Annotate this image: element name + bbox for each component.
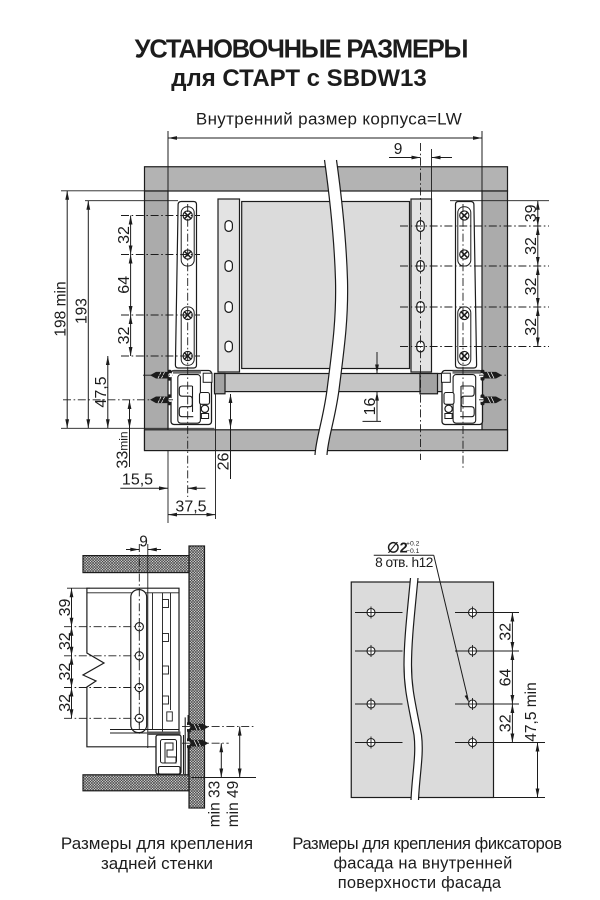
svg-text:32: 32 (57, 663, 74, 681)
svg-text:64: 64 (498, 669, 515, 687)
svg-text:39: 39 (523, 204, 540, 222)
svg-text:33min: 33min (115, 431, 132, 468)
svg-text:−0.1: −0.1 (406, 548, 420, 555)
svg-text:32: 32 (116, 226, 133, 244)
svg-text:для СТАРТ с SBDW13: для СТАРТ с SBDW13 (171, 65, 426, 92)
svg-text:39: 39 (57, 599, 74, 617)
svg-text:поверхности фасада: поверхности фасада (338, 874, 502, 892)
svg-text:Размеры для крепления: Размеры для крепления (61, 834, 253, 853)
svg-text:Внутренний размер корпуса=LW: Внутренний размер корпуса=LW (196, 110, 462, 129)
svg-text:32: 32 (523, 318, 540, 336)
svg-text:32: 32 (57, 632, 74, 650)
svg-text:64: 64 (116, 276, 133, 294)
svg-text:32: 32 (523, 237, 540, 255)
svg-text:198 min: 198 min (53, 281, 70, 336)
svg-text:min 33: min 33 (207, 781, 224, 828)
svg-text:32: 32 (523, 278, 540, 296)
svg-text:min 49: min 49 (225, 781, 242, 828)
svg-text:фасада на внутренней: фасада на внутренней (333, 855, 512, 873)
svg-text:47,5: 47,5 (93, 376, 110, 407)
svg-text:32: 32 (116, 327, 133, 345)
svg-text:15,5: 15,5 (122, 472, 153, 489)
svg-text:УСТАНОВОЧНЫЕ РАЗМЕРЫ: УСТАНОВОЧНЫЕ РАЗМЕРЫ (135, 36, 468, 64)
svg-text:26: 26 (216, 453, 233, 471)
svg-text:+0.2: +0.2 (406, 541, 420, 548)
svg-text:9: 9 (139, 534, 148, 551)
svg-text:задней стенки: задней стенки (101, 854, 213, 873)
svg-text:8 отв. h12: 8 отв. h12 (375, 555, 433, 570)
svg-text:32: 32 (498, 623, 515, 641)
svg-text:193: 193 (74, 298, 91, 324)
svg-text:9: 9 (394, 141, 403, 158)
svg-text:32: 32 (57, 694, 74, 712)
svg-text:37,5: 37,5 (175, 499, 206, 516)
svg-text:16: 16 (362, 398, 379, 416)
svg-text:Размеры для крепления фиксатор: Размеры для крепления фиксаторов (292, 835, 562, 853)
svg-text:32: 32 (498, 714, 515, 732)
svg-text:47,5 min: 47,5 min (523, 682, 540, 741)
